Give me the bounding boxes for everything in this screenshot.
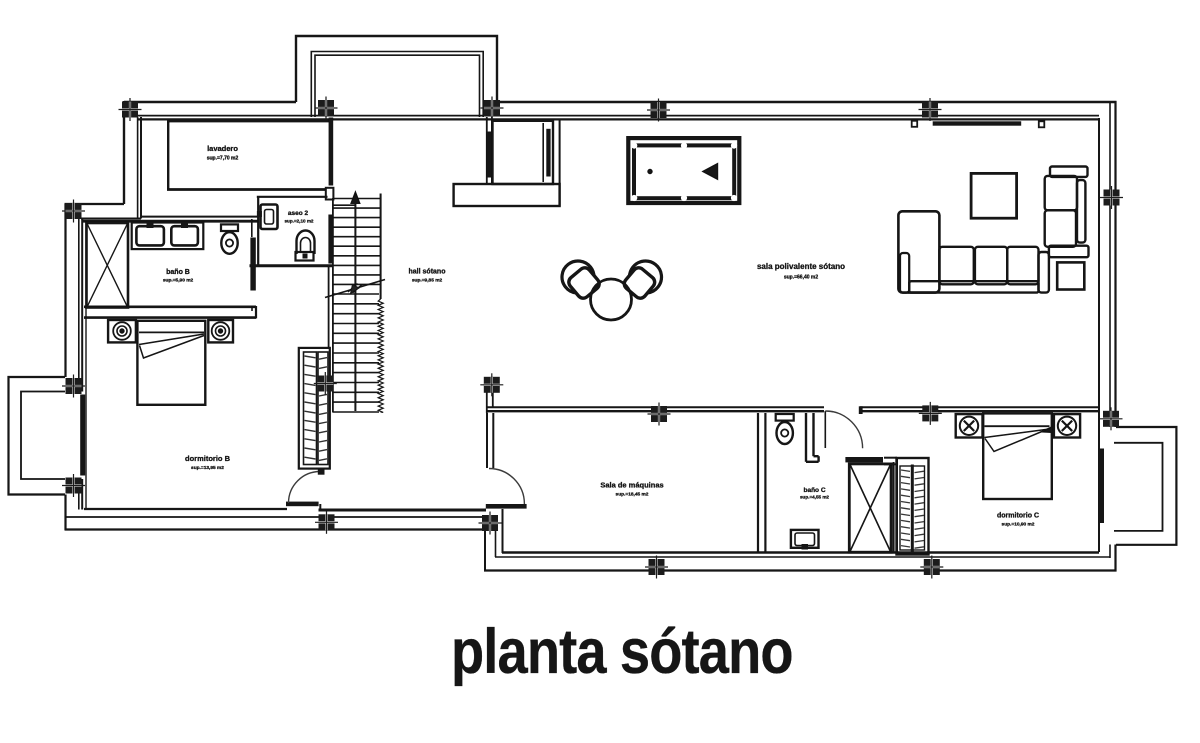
svg-text:sup.=13,95 m2: sup.=13,95 m2	[191, 465, 224, 471]
svg-text:sup.=10,90 m2: sup.=10,90 m2	[1002, 522, 1035, 528]
svg-text:sup.=7,70 m2: sup.=7,70 m2	[207, 156, 239, 162]
svg-text:aseo 2: aseo 2	[288, 210, 309, 217]
svg-text:Sala de máquinas: Sala de máquinas	[600, 481, 663, 490]
svg-text:dormitorio C: dormitorio C	[997, 513, 1039, 520]
svg-text:sup.=5,90 m2: sup.=5,90 m2	[163, 278, 194, 284]
svg-text:sup.=4,55 m2: sup.=4,55 m2	[800, 495, 829, 500]
svg-text:sup.=18,45 m2: sup.=18,45 m2	[616, 492, 649, 498]
svg-text:baño C: baño C	[803, 487, 825, 494]
svg-text:sup.=9,85 m2: sup.=9,85 m2	[412, 278, 443, 284]
svg-text:sup.=2,10 m2: sup.=2,10 m2	[285, 219, 314, 224]
svg-text:lavadero: lavadero	[207, 144, 238, 153]
svg-text:sup.=66,40 m2: sup.=66,40 m2	[784, 275, 819, 281]
svg-text:hall sótano: hall sótano	[409, 269, 446, 276]
svg-text:dormitorio B: dormitorio B	[185, 454, 231, 463]
svg-text:planta sótano: planta sótano	[451, 617, 793, 687]
svg-text:sala polivalente sótano: sala polivalente sótano	[757, 262, 845, 271]
svg-text:baño B: baño B	[166, 269, 190, 276]
